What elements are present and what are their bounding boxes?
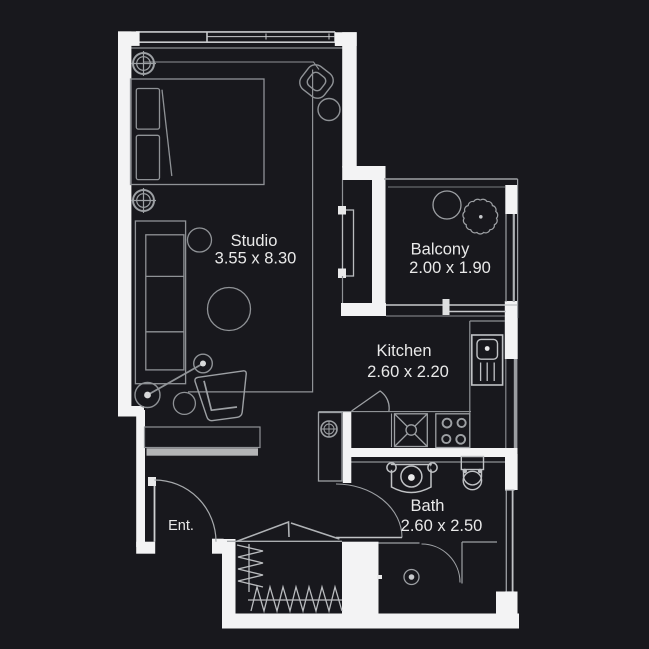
svg-text:Bath: Bath [411, 497, 445, 515]
svg-text:2.60 x 2.50: 2.60 x 2.50 [401, 517, 483, 535]
svg-text:2.00 x 1.90: 2.00 x 1.90 [409, 259, 491, 277]
svg-text:Ent.: Ent. [168, 518, 194, 534]
svg-text:Kitchen: Kitchen [376, 342, 431, 360]
svg-text:3.55 x 8.30: 3.55 x 8.30 [215, 250, 297, 268]
svg-text:Balcony: Balcony [411, 241, 470, 259]
svg-text:Studio: Studio [231, 232, 278, 250]
svg-text:2.60 x 2.20: 2.60 x 2.20 [367, 363, 449, 381]
